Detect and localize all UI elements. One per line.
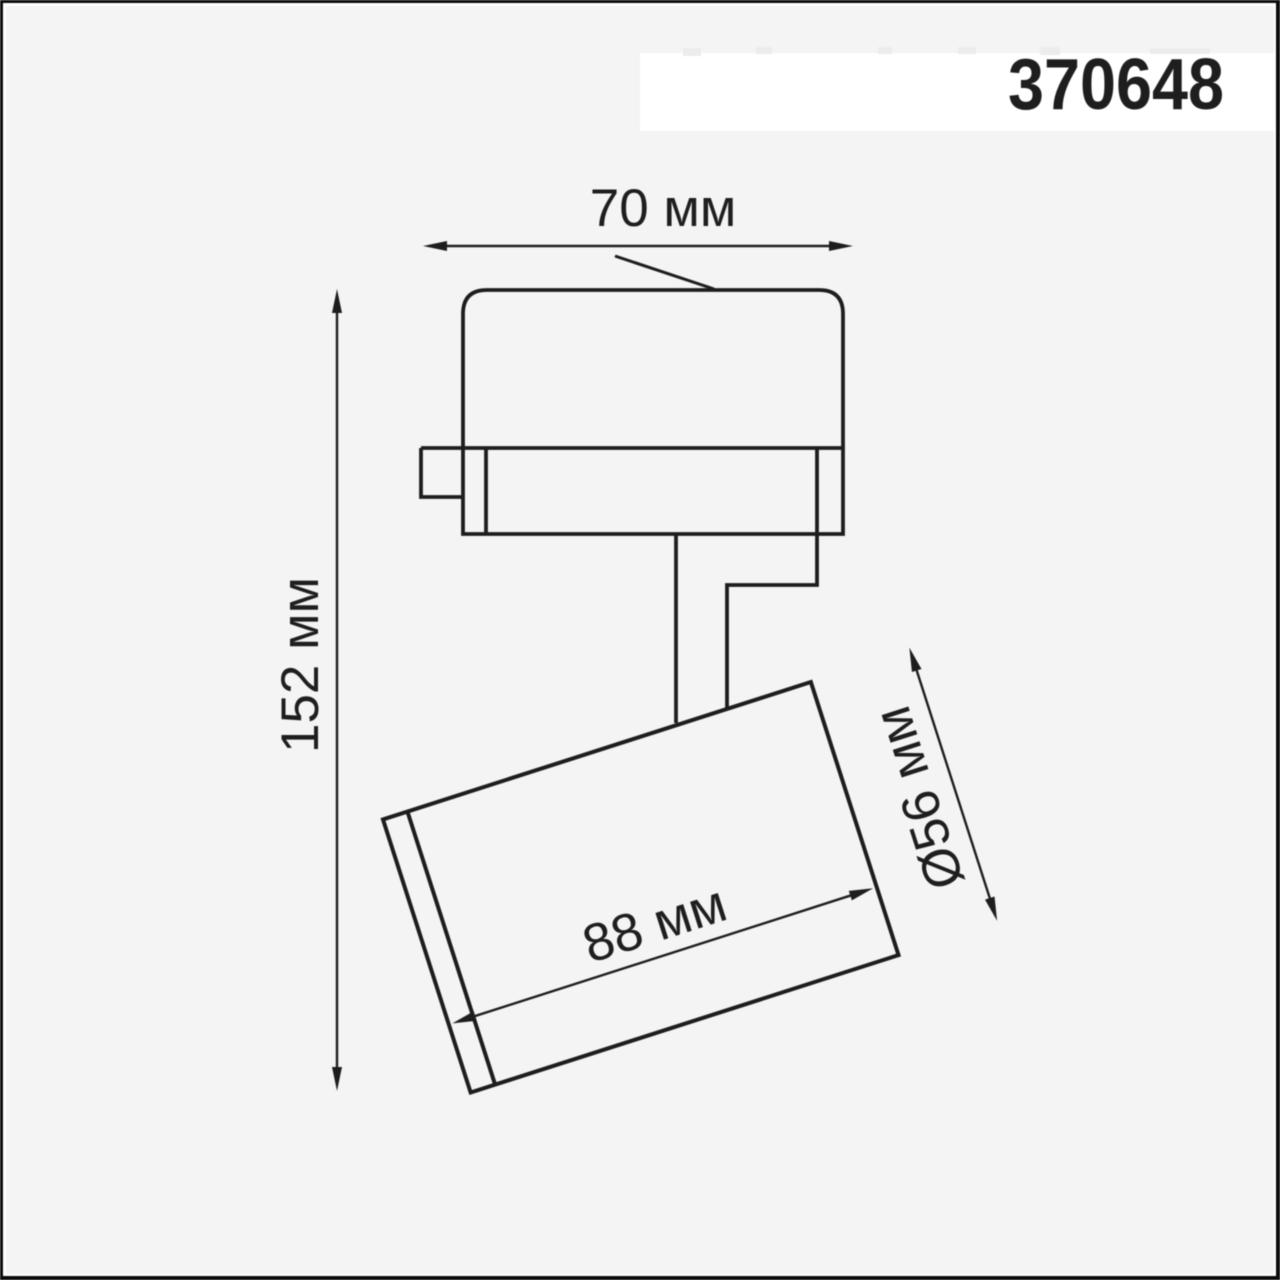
svg-text:370648: 370648 [1008, 45, 1224, 125]
svg-text:70 мм: 70 мм [590, 179, 737, 238]
svg-text:152 мм: 152 мм [271, 577, 330, 753]
